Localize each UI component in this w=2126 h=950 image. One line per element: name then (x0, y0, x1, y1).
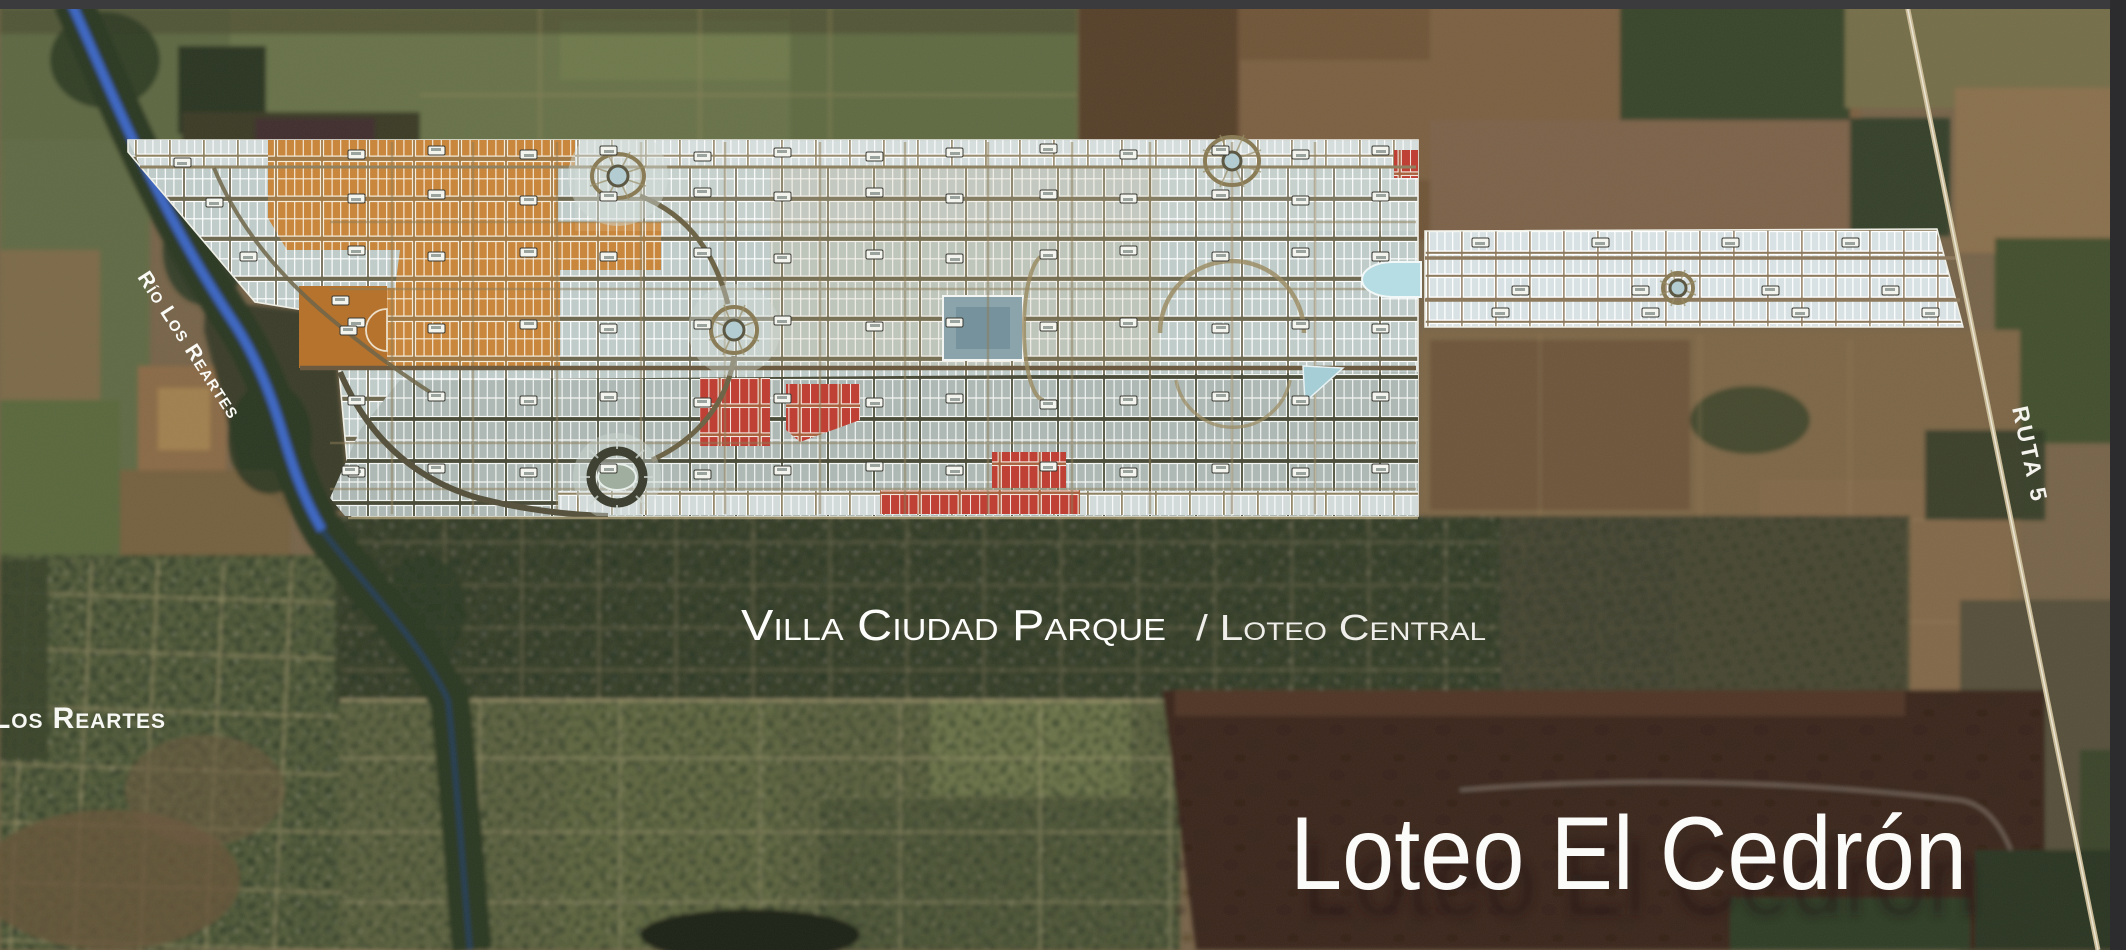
svg-text:Villa Ciudad Parque: Villa Ciudad Parque (741, 601, 1166, 650)
svg-text:Loteo El Cedrón: Loteo El Cedrón (1290, 796, 1967, 912)
svg-text:/ Loteo Central: / Loteo Central (1196, 607, 1486, 648)
svg-text:Los Reartes: Los Reartes (0, 702, 167, 735)
